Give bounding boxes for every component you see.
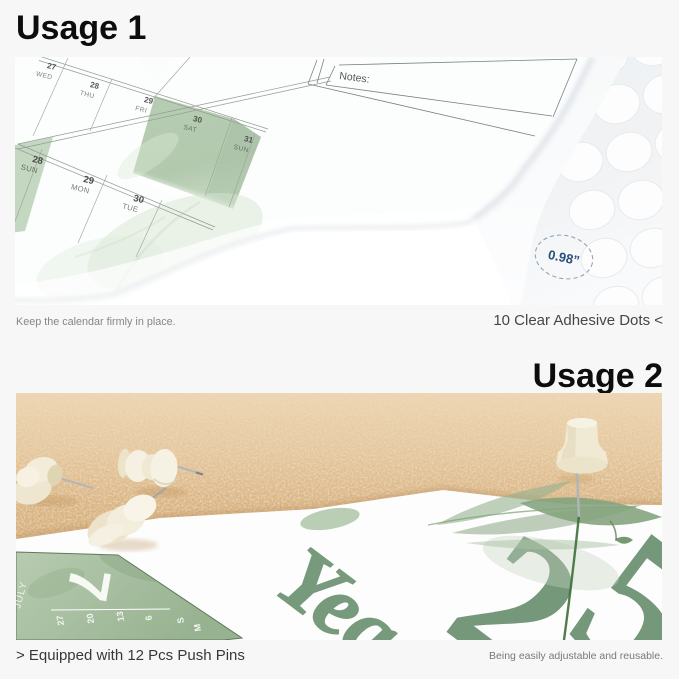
svg-text:M: M [192,623,203,632]
svg-text:13: 13 [115,611,126,622]
svg-text:27: 27 [55,615,66,626]
svg-text:20: 20 [85,613,96,624]
